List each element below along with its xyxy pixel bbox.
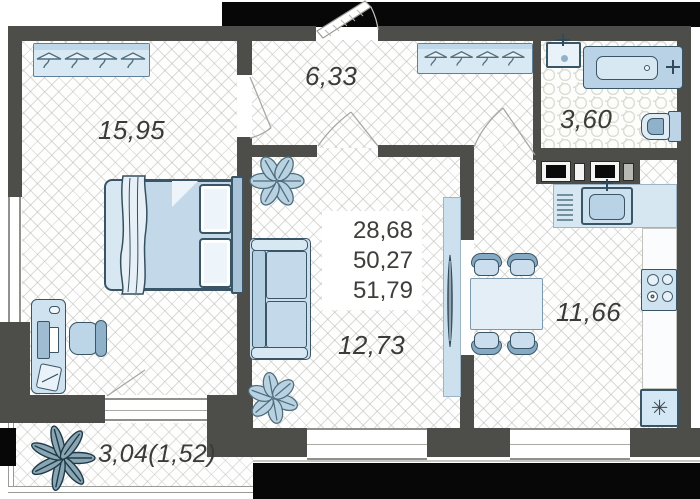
hallway-hanger-rack: [417, 43, 533, 74]
wall-kitchen-divider-lower: [460, 355, 474, 428]
area-summary-box: 28,68 50,27 51,79: [322, 211, 422, 310]
stove: [641, 269, 677, 311]
toilet: [641, 111, 683, 142]
hanger-icon: [476, 52, 498, 66]
wall-hall-bottom-left: [237, 145, 317, 157]
kitchen-window: [510, 428, 630, 460]
wall-corner-block-b: [253, 428, 307, 457]
area-summary-line: 51,79: [353, 276, 413, 306]
hanger-icon: [37, 53, 61, 68]
wall-bedroom-bottom: [30, 395, 105, 423]
bed-pillow: [199, 238, 232, 288]
wall-kitchen-divider-upper: [460, 145, 474, 240]
kitchen-sink-basin: [589, 194, 625, 220]
burner: [647, 291, 658, 302]
monitor-panel: [49, 327, 59, 353]
burner: [662, 291, 673, 302]
dining-table: [470, 278, 543, 330]
wardrobe-rod: [34, 44, 149, 50]
rack-rod: [418, 44, 532, 49]
snowflake-icon: ✳: [651, 396, 669, 421]
sofa-cushion: [266, 251, 307, 299]
tv-icon: [444, 253, 456, 349]
sofa-armrest: [251, 347, 308, 359]
hanger-icon: [121, 53, 145, 68]
sofa: [249, 238, 311, 360]
bedroom-window: [8, 197, 21, 322]
outside-top: [222, 2, 700, 27]
wall-bottom-pier-mid: [427, 428, 510, 457]
bed-blanket-fold: [172, 181, 198, 207]
bathtub: [583, 46, 683, 89]
cabinet-front: [623, 163, 634, 181]
hanger-icon: [93, 53, 117, 68]
desk-vent: [49, 306, 60, 314]
outside-bottom: [253, 463, 700, 499]
fridge: ✳: [640, 389, 679, 427]
desk-chair-back: [95, 320, 107, 357]
wall-bedroom-divider-upper: [237, 41, 252, 75]
bathroom-sink: [546, 42, 581, 68]
hallway-area-label: 6,33: [305, 61, 357, 92]
cabinet-front: [574, 163, 585, 181]
dish-rack-icon: [555, 192, 575, 222]
hanger-icon: [502, 52, 524, 66]
bathtub-drain: [644, 65, 650, 71]
sofa-cushion: [266, 301, 307, 348]
bed-pillow: [199, 184, 232, 234]
dining-chair: [507, 331, 538, 355]
balcony-area-label: 3,04(1,52): [98, 440, 216, 469]
bathroom-area-label: 3,60: [560, 104, 612, 135]
wall-top-left: [8, 26, 316, 41]
area-summary-line: 50,27: [353, 246, 413, 276]
dining-chair: [471, 331, 502, 355]
hanger-icon: [425, 52, 447, 66]
dining-chair: [471, 253, 502, 277]
wall-bottom-pier-right: [630, 428, 700, 457]
wall-left-upper: [8, 41, 22, 197]
facade-line: [253, 460, 700, 462]
burner: [662, 274, 673, 285]
wall-top-right: [378, 26, 691, 41]
toilet-seat: [647, 118, 664, 135]
desk-chair: [67, 319, 108, 359]
toilet-tank: [668, 111, 682, 142]
bed: [103, 176, 245, 294]
outside-left-stub: [0, 428, 16, 466]
hanger-icon: [451, 52, 473, 66]
faucet-icon: [598, 178, 616, 192]
sofa-back: [252, 250, 266, 348]
dining-chair: [507, 253, 538, 277]
desk: [31, 299, 66, 394]
wall-bathroom-left: [533, 41, 541, 150]
bed-throw: [115, 174, 155, 296]
bed-headboard: [231, 176, 244, 294]
wall-right: [677, 41, 691, 428]
area-summary-line: 28,68: [353, 216, 413, 246]
burner: [647, 274, 659, 286]
living-room-area-label: 12,73: [338, 330, 405, 361]
notepad-icon: [36, 363, 63, 392]
floor-plan: ✳: [0, 0, 700, 499]
balcony-glazing-bottom: [8, 486, 253, 493]
wall-left-pier: [0, 322, 30, 423]
balcony-door-window: [105, 398, 207, 421]
hanger-icon: [65, 53, 89, 68]
bedroom-area-label: 15,95: [98, 115, 165, 146]
living-room-window: [307, 428, 427, 460]
washer-icon: [541, 161, 571, 182]
sink-drain: [561, 55, 568, 62]
sofa-armrest: [251, 239, 308, 251]
wardrobe: [33, 43, 150, 77]
kitchen-area-label: 11,66: [556, 297, 621, 328]
kitchen-sink: [581, 187, 633, 225]
